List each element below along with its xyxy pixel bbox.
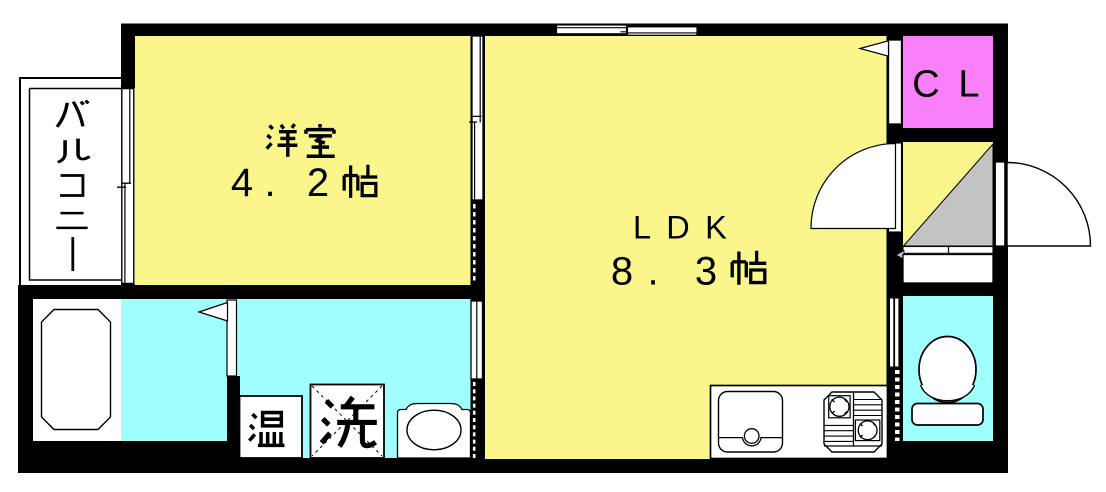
svg-text:LDK: LDK (633, 210, 727, 246)
